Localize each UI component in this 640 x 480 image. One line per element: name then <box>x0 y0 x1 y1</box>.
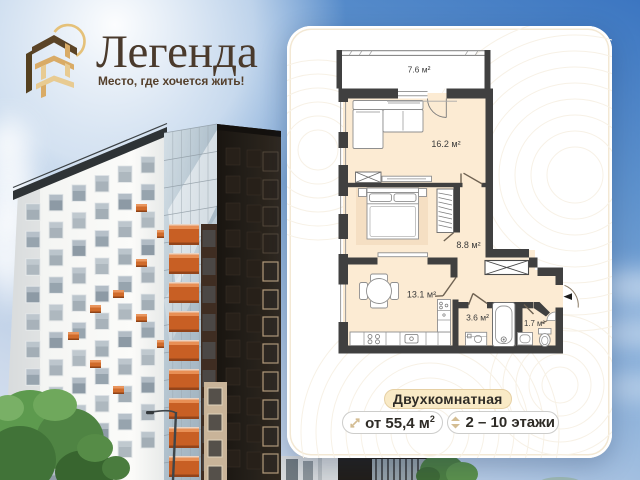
svg-text:8.8 м²: 8.8 м² <box>456 240 480 250</box>
svg-text:3.6 м²: 3.6 м² <box>466 313 489 323</box>
svg-text:1.7 м²: 1.7 м² <box>524 319 545 328</box>
svg-text:13.1 м²: 13.1 м² <box>407 290 436 300</box>
svg-text:16.2 м²: 16.2 м² <box>431 139 460 149</box>
svg-text:7.6 м²: 7.6 м² <box>408 65 431 75</box>
